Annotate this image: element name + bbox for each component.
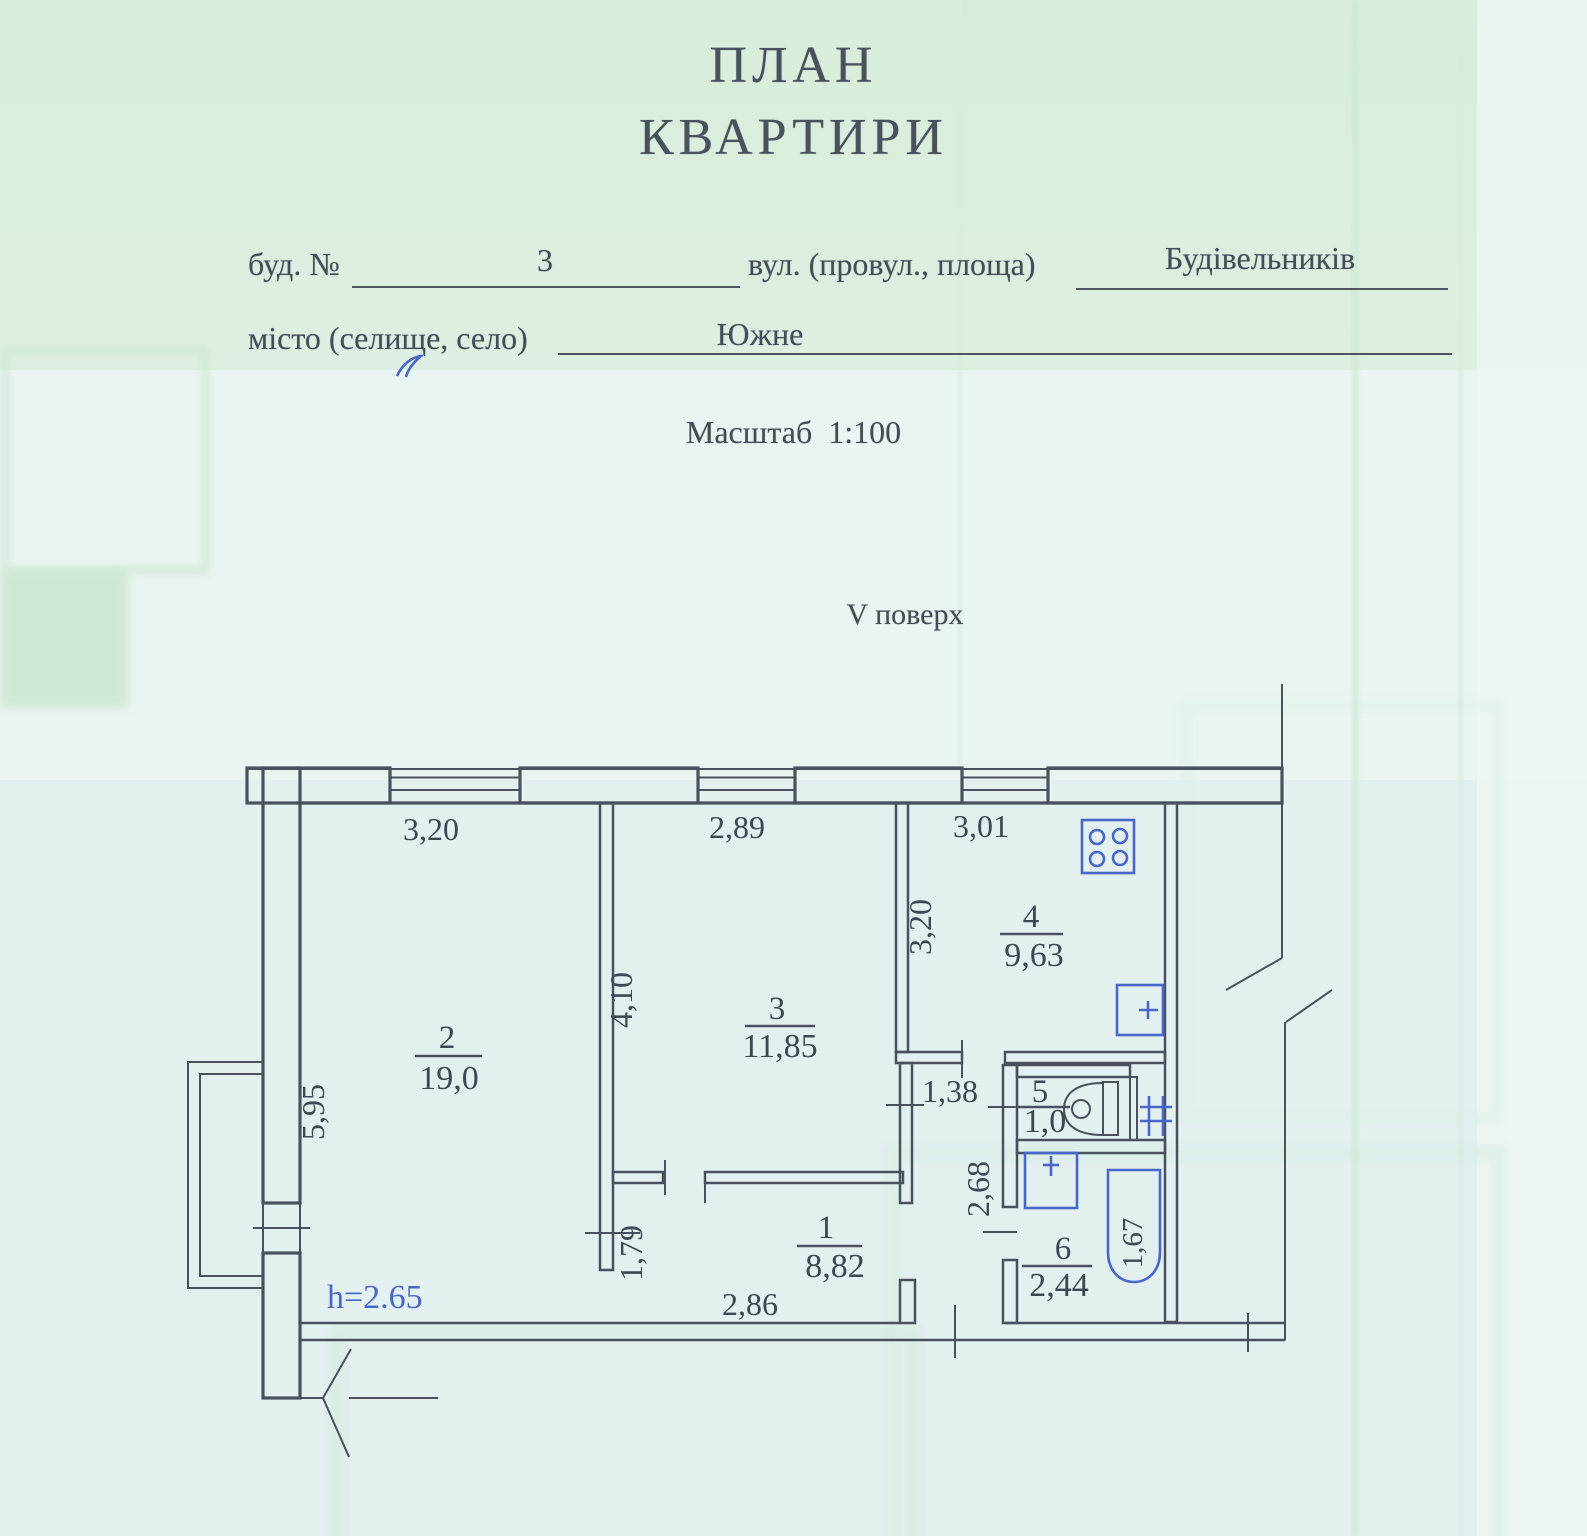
wall-break-mark (323, 1349, 351, 1457)
dim-corridor-width: 1,38 (922, 1073, 978, 1109)
room-area: 8,82 (805, 1248, 865, 1285)
stove-icon (1082, 820, 1134, 873)
window (698, 778, 795, 791)
wall-segment (795, 768, 962, 803)
kitchen-bottom-wall (1005, 1052, 1165, 1063)
ceiling-height-note: h=2.65 (327, 1279, 423, 1316)
pen-mark (397, 356, 421, 377)
window (962, 778, 1048, 791)
room-area: 1,0 (1024, 1103, 1067, 1140)
wc-bath-separator-wall (1017, 1140, 1165, 1153)
room-area: 11,85 (742, 1028, 817, 1065)
wc-bath-left-wall (1003, 1260, 1017, 1323)
wall-segment (1048, 768, 1282, 803)
balcony (188, 1062, 263, 1288)
window (390, 778, 520, 791)
room-label-bedroom: 3 11,85 (742, 991, 817, 1065)
dim-bath-width: 2,68 (960, 1161, 996, 1217)
room-number: 3 (769, 991, 786, 1027)
toilet-icon (1064, 1082, 1118, 1135)
balcony-inner-line (200, 1074, 263, 1276)
dim-hall-length: 2,86 (722, 1286, 778, 1322)
kitchen-bottom-wall (896, 1052, 962, 1063)
room-area: 2,44 (1029, 1267, 1089, 1304)
floor-plan-drawing: 3,20 2,89 3,01 3,20 4,10 5,95 1,38 1,79 … (0, 0, 1587, 1536)
wall-break-mark (1226, 958, 1282, 990)
room-labels: 2 19,0 3 11,85 4 9,63 5 1,0 6 (415, 899, 1092, 1304)
dim-window-middle: 2,89 (709, 809, 765, 845)
dim-bedroom-width: 4,10 (603, 972, 639, 1028)
wall-segment (520, 768, 698, 803)
dim-hall-width: 1,79 (613, 1225, 649, 1281)
wall-break-mark (1286, 990, 1332, 1022)
wc-right-wall (1130, 1077, 1137, 1140)
room-number: 6 (1055, 1231, 1072, 1267)
room-number: 1 (818, 1210, 835, 1246)
dim-bathtub-length: 1,67 (1117, 1218, 1149, 1269)
dim-left-wall: 5,95 (295, 1084, 331, 1140)
ventilation-grid-icon (1140, 1096, 1172, 1136)
room-area: 9,63 (1004, 937, 1064, 974)
room-number: 2 (439, 1020, 456, 1056)
room-label-bathroom: 6 2,44 (1022, 1231, 1092, 1304)
kitchen-sink-icon (1117, 985, 1163, 1035)
room-label-kitchen: 4 9,63 (1000, 899, 1064, 974)
room-area: 19,0 (419, 1060, 479, 1097)
room-number: 4 (1023, 899, 1040, 935)
room-label-wc: 5 1,0 (1016, 1074, 1070, 1140)
washbasin-icon (1025, 1153, 1077, 1208)
partition-living-bedroom (600, 803, 613, 1270)
wc-bath-left-wall (1003, 1065, 1017, 1207)
room-label-living: 2 19,0 (415, 1020, 482, 1097)
right-interior-long-wall (1165, 803, 1177, 1322)
dim-window-right: 3,01 (953, 808, 1009, 844)
bedroom-bottom-wall (613, 1172, 663, 1183)
dim-window-left: 3,20 (403, 811, 459, 847)
room-label-hall: 1 8,82 (797, 1210, 865, 1285)
interior-walls (600, 803, 1177, 1323)
bedroom-bottom-wall (705, 1172, 903, 1183)
scanned-apartment-plan-page: ПЛАН КВАРТИРИ буд. № 3 вул. (провул., пл… (0, 0, 1587, 1536)
windows (390, 778, 1048, 791)
wall-segment-left-lower (263, 1253, 300, 1398)
dim-kitchen-width: 3,20 (902, 899, 938, 955)
wall-segment (247, 768, 390, 803)
entrance-door-jamb (900, 1280, 915, 1323)
